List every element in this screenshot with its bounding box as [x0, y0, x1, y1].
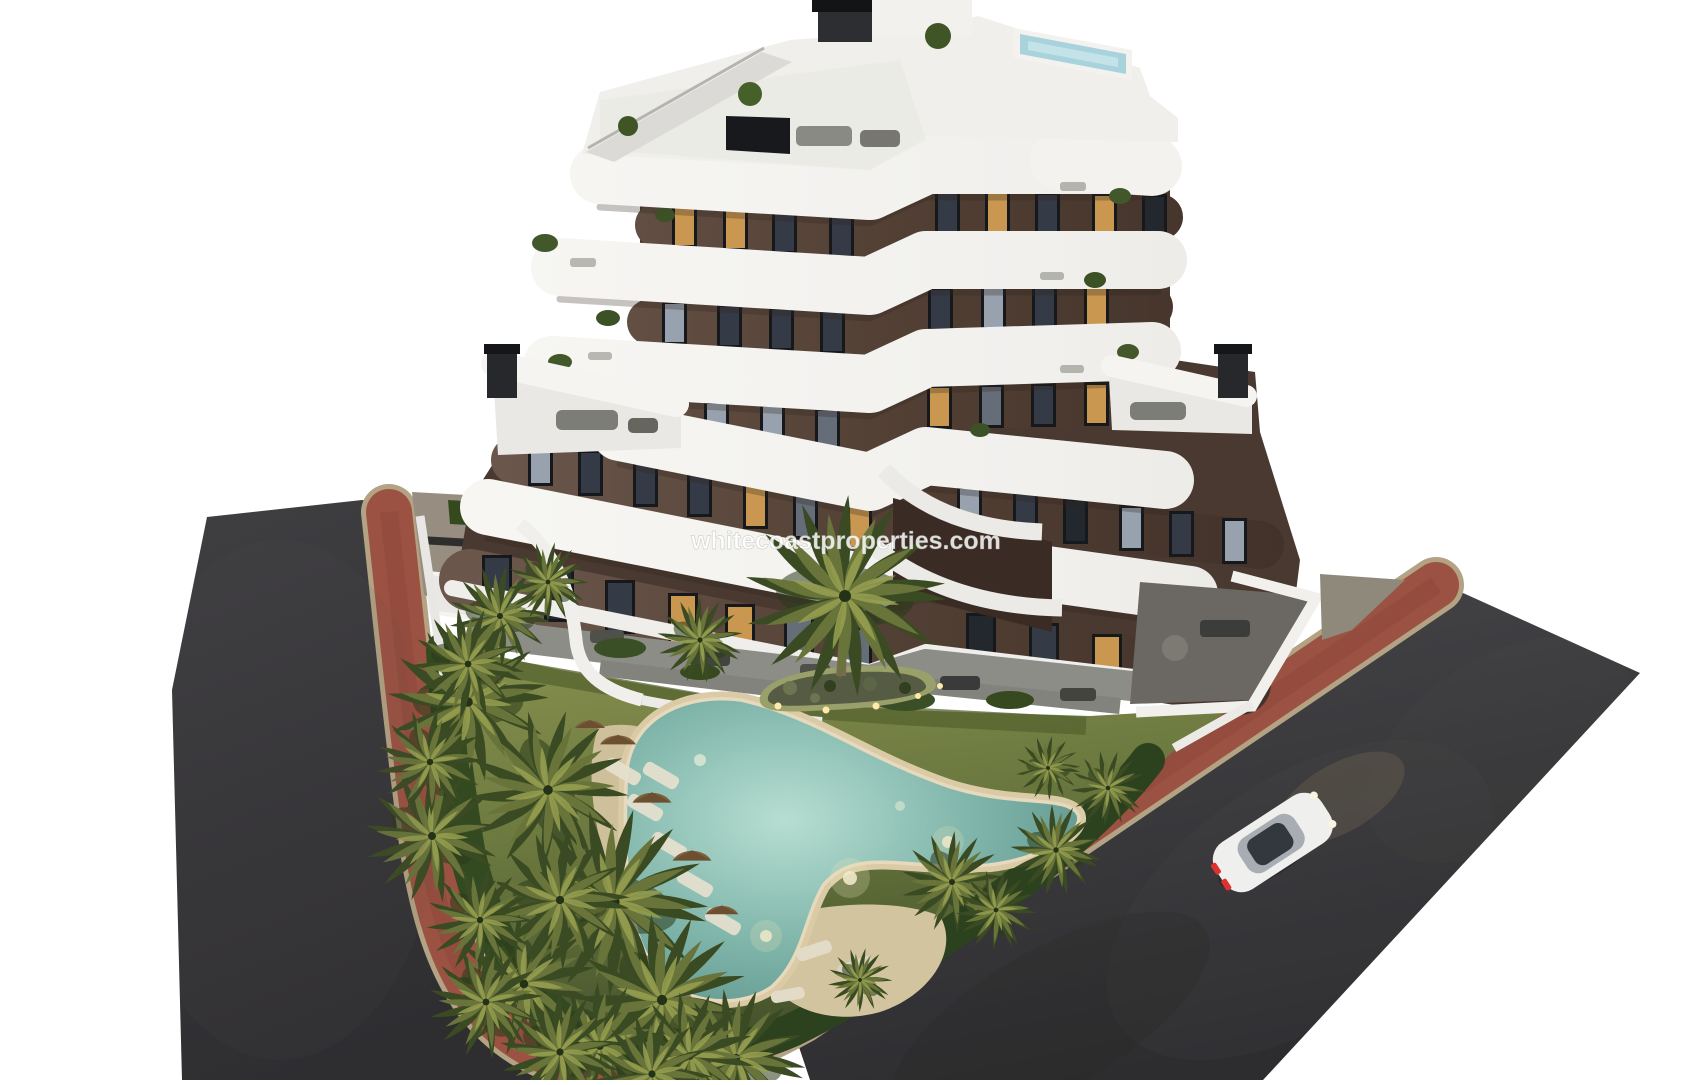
svg-text:whitecoastproperties.com: whitecoastproperties.com: [690, 527, 1001, 555]
